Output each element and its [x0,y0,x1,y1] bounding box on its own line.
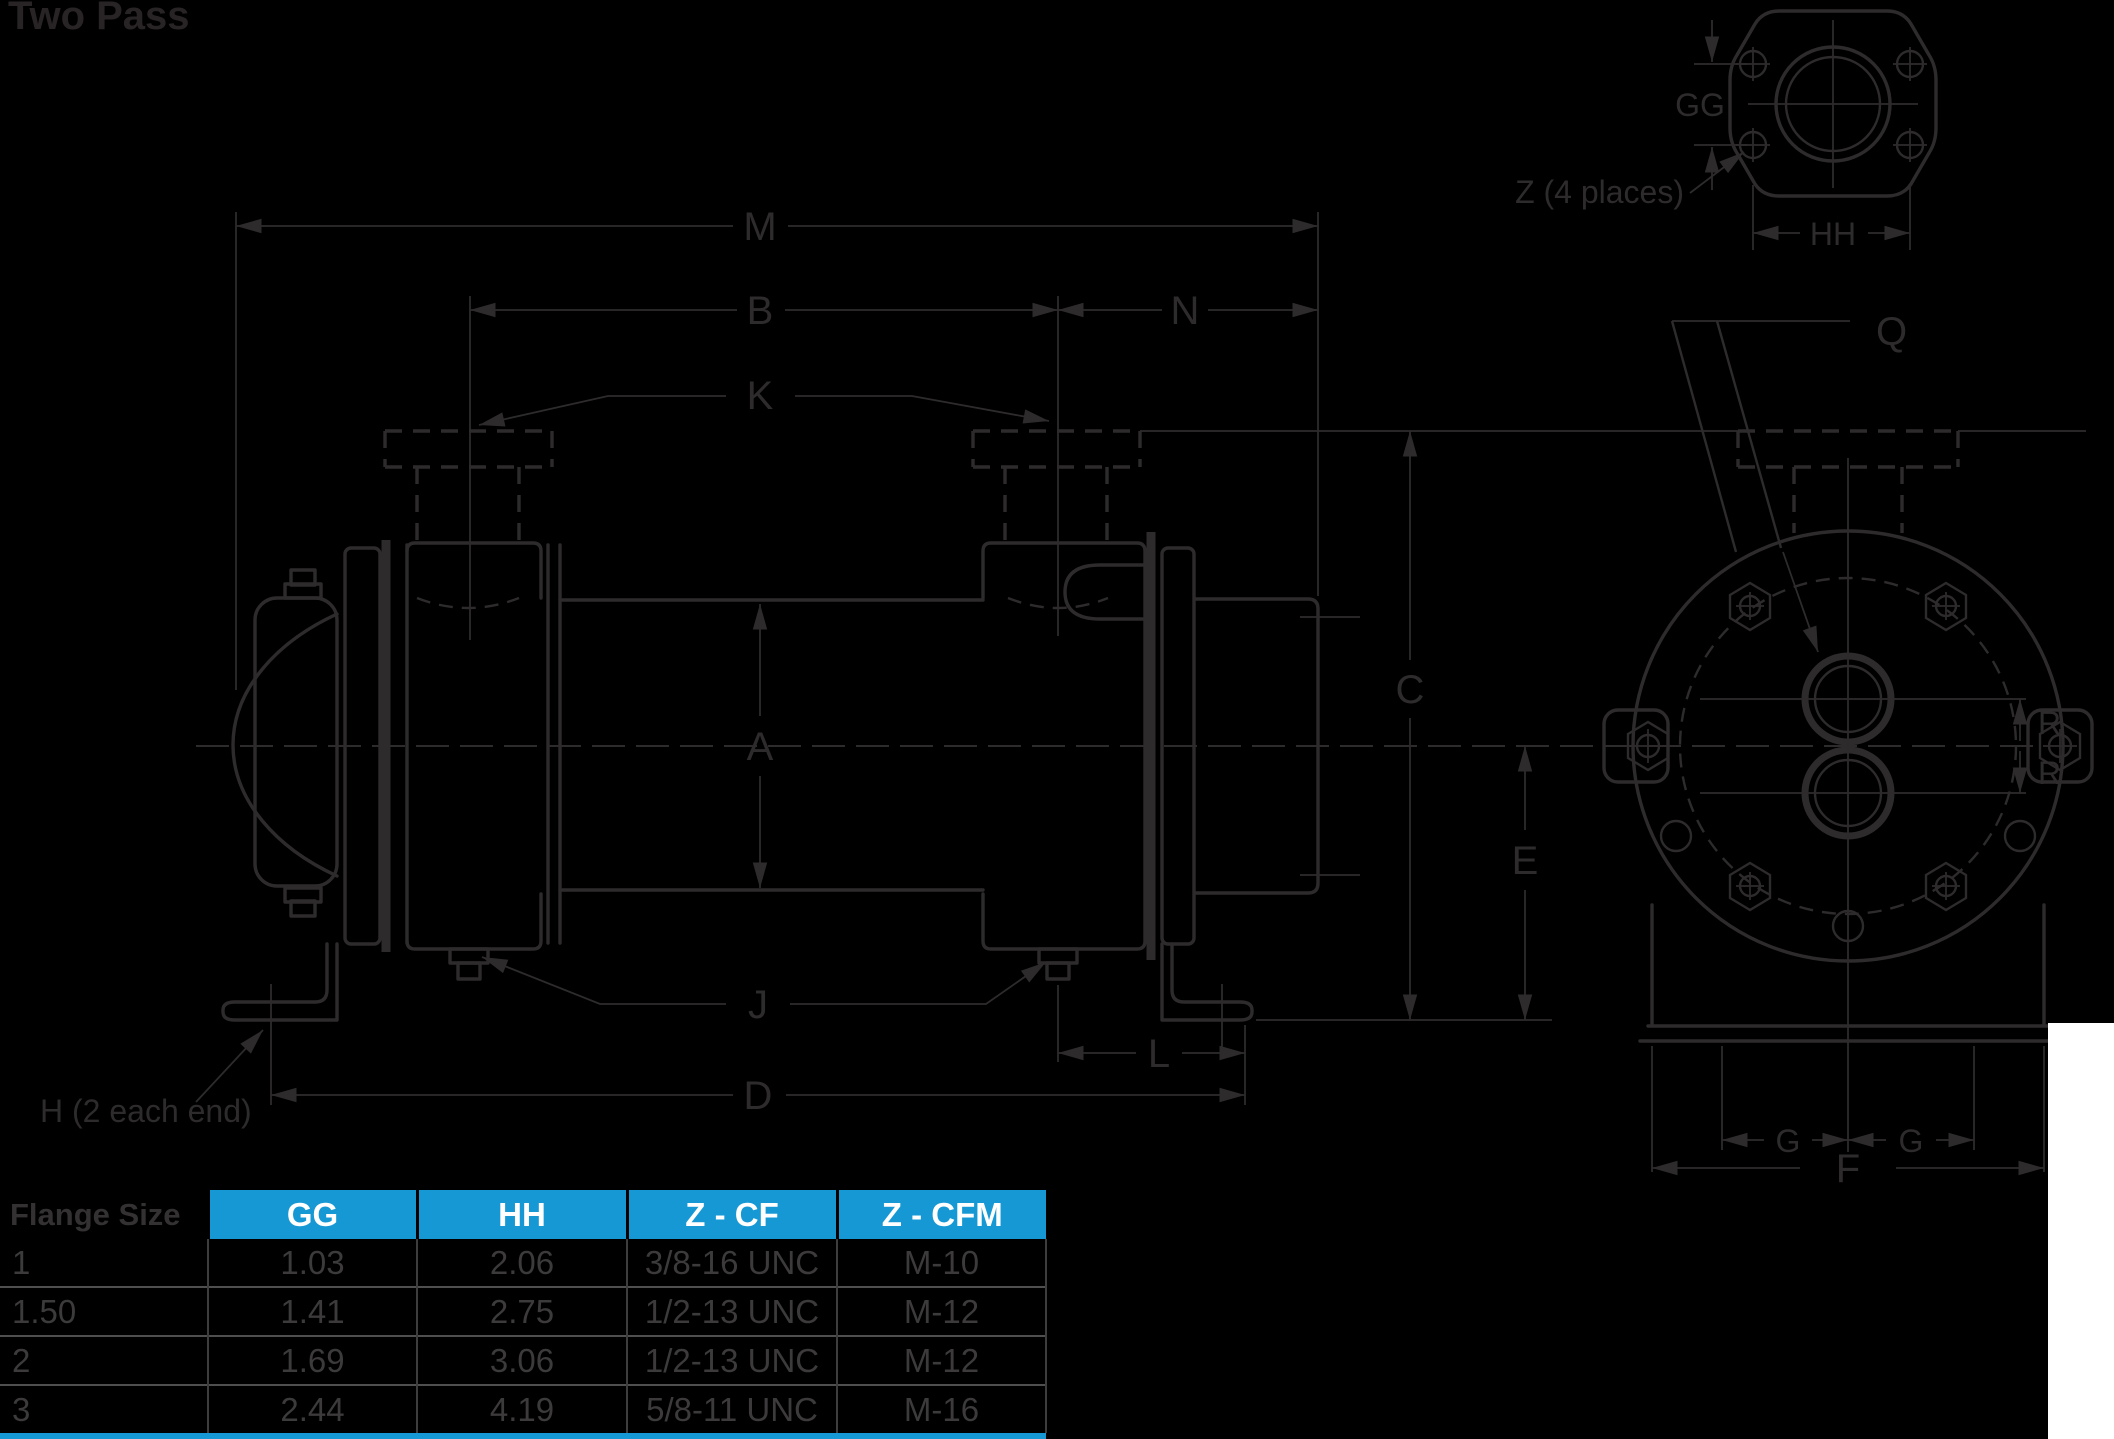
cell-hh: 4.19 [417,1385,627,1433]
dim-label-a: A [747,725,774,769]
cell-hh: 2.06 [417,1239,627,1287]
cell-gg: 1.69 [208,1336,417,1385]
flange-size-table: Flange Size GG HH Z - CF Z - CFM 1 1.03 … [0,1190,1047,1433]
h-note-label: H (2 each end) [40,1093,252,1129]
table-row: 1.50 1.41 2.75 1/2-13 UNC M-12 [0,1287,1046,1336]
dim-E: E [1512,746,1539,1020]
dim-label-d: D [744,1074,773,1118]
end-view: Q [1604,310,2092,1191]
dim-C: C [1396,431,1425,1020]
cell-z-cfm: M-10 [837,1239,1046,1287]
cell-z-cf: 1/2-13 UNC [627,1287,837,1336]
page-title: Two Pass [8,0,190,39]
dim-label-k: K [747,374,774,418]
column-header-z-cf: Z - CF [627,1190,837,1239]
column-header-gg: GG [208,1190,417,1239]
foot-right [1162,944,1252,1048]
dim-label-j: J [748,983,768,1027]
cell-hh: 2.75 [417,1287,627,1336]
dim-A: A [747,604,774,888]
table-row: 3 2.44 4.19 5/8-11 UNC M-16 [0,1385,1046,1433]
column-header-flange-size: Flange Size [0,1190,208,1239]
dim-label-q: Q [1876,310,1907,354]
dim-label-hh: HH [1810,216,1856,252]
cell-z-cf: 5/8-11 UNC [627,1385,837,1433]
note-Z: Z (4 places) [1515,152,1744,210]
white-corner-patch [2048,1023,2114,1439]
cell-z-cfm: M-16 [837,1385,1046,1433]
cell-z-cf: 3/8-16 UNC [627,1239,837,1287]
dim-label-gg: GG [1675,87,1725,123]
note-H: H (2 each end) [40,1030,263,1129]
z-note-label: Z (4 places) [1515,174,1684,210]
dim-GG: GG [1675,20,1747,190]
dim-label-n: N [1171,289,1200,333]
cell-flange-size: 1 [0,1239,208,1287]
dim-Q: Q [1672,310,1907,652]
cell-flange-size: 2 [0,1336,208,1385]
dim-label-r-top: R [2038,705,2061,741]
cell-gg: 1.03 [208,1239,417,1287]
flange-detail: GG Z (4 places) HH [1515,11,1936,252]
top-port-left [385,431,552,608]
dim-label-f: F [1836,1147,1860,1191]
dim-R-top: R [2020,699,2061,741]
dim-D: D [271,1074,1245,1118]
dim-label-l: L [1148,1032,1170,1076]
foot-left [223,944,337,1105]
dim-label-m: M [743,205,776,249]
cell-z-cfm: M-12 [837,1336,1046,1385]
page: Two Pass M B [0,0,2114,1439]
dim-label-g-right: G [1899,1123,1924,1159]
dim-label-e: E [1512,839,1539,883]
cell-z-cf: 1/2-13 UNC [627,1336,837,1385]
table-row: 1 1.03 2.06 3/8-16 UNC M-10 [0,1239,1046,1287]
table-bottom-accent-bar [0,1433,1046,1439]
cell-gg: 1.41 [208,1287,417,1336]
dim-M: M [236,205,1318,249]
column-header-z-cfm: Z - CFM [837,1190,1046,1239]
left-bonnet [233,570,337,916]
dim-label-r-bottom: R [2038,755,2061,791]
top-port-right [973,431,1140,608]
cell-flange-size: 1.50 [0,1287,208,1336]
side-view: M B N K [40,205,2086,1129]
table-header-row: Flange Size GG HH Z - CF Z - CFM [0,1190,1046,1239]
dim-R-bottom: R [2020,751,2061,793]
dim-J: J [482,957,1046,1027]
dim-K: K [479,374,1049,425]
dim-N: N [1058,289,1318,333]
cell-flange-size: 3 [0,1385,208,1433]
cell-gg: 2.44 [208,1385,417,1433]
dim-label-g-left: G [1776,1123,1801,1159]
table-row: 2 1.69 3.06 1/2-13 UNC M-12 [0,1336,1046,1385]
cell-hh: 3.06 [417,1336,627,1385]
dim-label-b: B [747,289,774,333]
column-header-hh: HH [417,1190,627,1239]
end-ports [1700,458,2026,1152]
drain-plug-left [450,949,488,979]
dim-label-c: C [1396,668,1425,712]
dim-B: B [470,289,1058,333]
cell-z-cfm: M-12 [837,1287,1046,1336]
